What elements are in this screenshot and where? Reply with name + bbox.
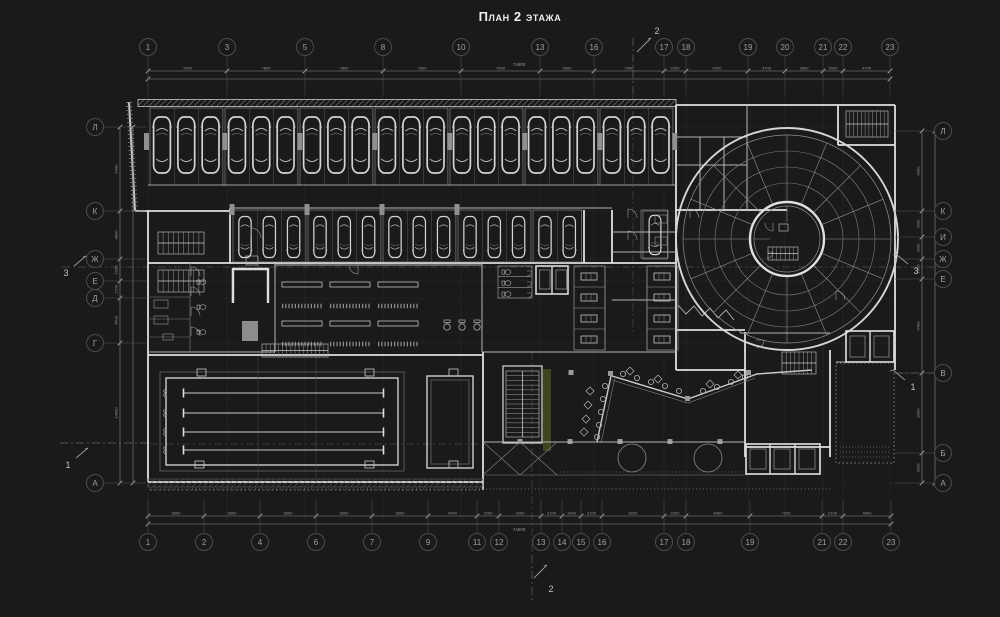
- section-marker-2: 2: [534, 565, 554, 594]
- svg-text:20: 20: [781, 43, 790, 52]
- svg-text:74600: 74600: [513, 62, 526, 67]
- svg-text:2: 2: [202, 538, 207, 547]
- svg-text:9: 9: [426, 538, 431, 547]
- grid-bubble: 7: [364, 534, 381, 551]
- svg-text:1: 1: [910, 382, 915, 392]
- planter-strip: [543, 369, 551, 451]
- section-markers: 223311: [63, 26, 918, 594]
- grid-bubble: 16: [594, 534, 611, 551]
- svg-text:3700: 3700: [762, 66, 772, 71]
- svg-text:17: 17: [660, 538, 669, 547]
- grid-bubble: А: [87, 475, 104, 492]
- grid-bubble: 12: [491, 534, 508, 551]
- svg-text:3: 3: [63, 268, 68, 278]
- svg-text:14: 14: [558, 538, 567, 547]
- grid-bubble: 11: [469, 534, 486, 551]
- grid-bubble: Б: [935, 445, 952, 462]
- svg-text:1: 1: [65, 460, 70, 470]
- svg-text:1: 1: [146, 43, 151, 52]
- grid-bubble: А: [935, 475, 952, 492]
- grid-bubble: 22: [835, 39, 852, 56]
- svg-text:2200: 2200: [484, 511, 494, 516]
- svg-text:19: 19: [746, 538, 755, 547]
- svg-text:5: 5: [303, 43, 308, 52]
- parking-top-wall: [138, 100, 676, 107]
- grid-bubble: Л: [935, 123, 952, 140]
- svg-text:18: 18: [682, 43, 691, 52]
- grid-bubble: Ж: [935, 251, 952, 268]
- svg-text:4200: 4200: [516, 511, 526, 516]
- svg-text:Л: Л: [92, 123, 97, 132]
- svg-text:5600: 5600: [396, 511, 406, 516]
- svg-text:5600: 5600: [172, 511, 182, 516]
- grid-bubble: К: [87, 203, 104, 220]
- grid-bubble: 4: [252, 534, 269, 551]
- small-pool: [427, 376, 473, 468]
- spiral-ramp: [676, 128, 898, 350]
- section-marker-1: 1: [65, 448, 88, 470]
- grid-bubble: Е: [935, 271, 952, 288]
- grid-bubble: 9: [420, 534, 437, 551]
- svg-text:1700: 1700: [114, 284, 119, 294]
- main-pool: [166, 378, 398, 465]
- grid-bubble: Г: [87, 335, 104, 352]
- svg-text:14000: 14000: [114, 407, 119, 419]
- grid-bubble: 21: [815, 39, 832, 56]
- grid-bubble: 5: [297, 39, 314, 56]
- shaft-fill: [242, 321, 258, 341]
- grid-bubble: 2: [196, 534, 213, 551]
- grid-bubble: Л: [87, 119, 104, 136]
- grid-bubbles: 1358101316171819202122231246791112131415…: [87, 39, 952, 551]
- svg-text:2200: 2200: [671, 511, 681, 516]
- svg-text:7000: 7000: [625, 66, 635, 71]
- svg-text:2200: 2200: [671, 66, 681, 71]
- svg-text:Д: Д: [92, 294, 98, 303]
- svg-text:6200: 6200: [713, 66, 723, 71]
- svg-text:2: 2: [654, 26, 659, 36]
- svg-text:Г: Г: [93, 339, 98, 348]
- column-circle: [694, 444, 722, 472]
- parking-row-top: [144, 108, 677, 185]
- svg-text:23: 23: [886, 43, 895, 52]
- svg-text:А: А: [940, 479, 946, 488]
- grid-bubble: 20: [777, 39, 794, 56]
- cabin-stacks: [574, 266, 678, 350]
- grid-bubble: Е: [87, 273, 104, 290]
- sawtooth-wall: [678, 305, 734, 320]
- svg-text:И: И: [940, 233, 946, 242]
- svg-text:2200: 2200: [114, 265, 119, 275]
- ramp-spokes: [683, 135, 891, 343]
- svg-text:6: 6: [314, 538, 319, 547]
- svg-text:К: К: [93, 207, 98, 216]
- bar-counter: [612, 370, 812, 399]
- grid-bubble: 17: [656, 534, 673, 551]
- svg-text:2200: 2200: [916, 243, 921, 253]
- svg-text:1900: 1900: [567, 511, 577, 516]
- svg-text:16: 16: [598, 538, 607, 547]
- svg-text:16: 16: [590, 43, 599, 52]
- svg-text:22: 22: [839, 538, 848, 547]
- gym-locker-room: [282, 282, 480, 344]
- grid-bubble: 18: [678, 39, 695, 56]
- svg-text:7800: 7800: [340, 66, 350, 71]
- svg-text:4500: 4500: [114, 315, 119, 325]
- grid-bubble: К: [935, 203, 952, 220]
- svg-text:4700: 4700: [862, 66, 872, 71]
- grid-bubble: 6: [308, 534, 325, 551]
- svg-text:2100: 2100: [547, 511, 557, 516]
- svg-text:7900: 7900: [496, 66, 506, 71]
- floor-plan-screenshot: План 2 этажа: [0, 0, 1000, 617]
- svg-text:4800: 4800: [863, 511, 873, 516]
- svg-text:10: 10: [457, 43, 466, 52]
- svg-text:1: 1: [146, 538, 151, 547]
- grid-bubble: И: [935, 229, 952, 246]
- column-circle: [618, 444, 646, 472]
- svg-text:12: 12: [495, 538, 504, 547]
- svg-text:К: К: [941, 207, 946, 216]
- svg-text:15: 15: [577, 538, 586, 547]
- grid-bubble: 13: [532, 39, 549, 56]
- grid-bubble: 1: [140, 534, 157, 551]
- grid-bubble: 13: [533, 534, 550, 551]
- grid-bubble: 15: [573, 534, 590, 551]
- svg-text:5600: 5600: [228, 511, 238, 516]
- svg-text:3: 3: [913, 266, 918, 276]
- svg-text:Е: Е: [92, 277, 97, 286]
- svg-text:18: 18: [682, 538, 691, 547]
- svg-text:2: 2: [548, 584, 553, 594]
- svg-text:21: 21: [818, 538, 827, 547]
- svg-text:В: В: [940, 369, 945, 378]
- grid-bubble: 3: [219, 39, 236, 56]
- svg-text:7800: 7800: [418, 66, 428, 71]
- service-rooms: [154, 111, 894, 474]
- grid-bubble: 23: [883, 534, 900, 551]
- svg-text:13: 13: [537, 538, 546, 547]
- svg-text:Ж: Ж: [91, 255, 99, 264]
- svg-text:А: А: [92, 479, 98, 488]
- svg-text:3800: 3800: [800, 66, 810, 71]
- svg-text:11: 11: [473, 538, 482, 547]
- svg-text:6400: 6400: [714, 511, 724, 516]
- svg-text:19: 19: [744, 43, 753, 52]
- grid-bubble: 23: [882, 39, 899, 56]
- svg-text:7200: 7200: [782, 511, 792, 516]
- floor-plan-canvas: 7900780078007800790054007000220062003700…: [0, 0, 1000, 617]
- svg-text:8000: 8000: [916, 166, 921, 176]
- svg-text:Ж: Ж: [939, 255, 947, 264]
- svg-text:23: 23: [887, 538, 896, 547]
- grid-bubble: 19: [742, 534, 759, 551]
- grid-bubble: 21: [814, 534, 831, 551]
- svg-text:5400: 5400: [563, 66, 573, 71]
- svg-text:2100: 2100: [587, 511, 597, 516]
- grid-bubble: 1: [140, 39, 157, 56]
- dimension-lines: 7900780078007800790054007000220062003700…: [114, 62, 938, 532]
- parking-row-middle: [230, 204, 668, 262]
- walkway: [483, 442, 745, 475]
- grid-bubble: Ж: [87, 251, 104, 268]
- svg-text:2000: 2000: [829, 66, 839, 71]
- grid-bubble: В: [935, 365, 952, 382]
- svg-text:Б: Б: [940, 449, 945, 458]
- svg-text:7900: 7900: [183, 66, 193, 71]
- grid-bubble: 10: [453, 39, 470, 56]
- svg-text:7800: 7800: [262, 66, 272, 71]
- svg-text:Е: Е: [940, 275, 945, 284]
- svg-text:74600: 74600: [513, 527, 526, 532]
- pool-hall: [160, 356, 473, 480]
- svg-text:4900: 4900: [448, 511, 458, 516]
- svg-text:3000: 3000: [916, 463, 921, 473]
- svg-text:3: 3: [225, 43, 230, 52]
- svg-text:13: 13: [536, 43, 545, 52]
- svg-text:4800: 4800: [114, 230, 119, 240]
- terrace-dotted: [836, 363, 894, 463]
- grid-bubble: 14: [554, 534, 571, 551]
- drawing-title: План 2 этажа: [20, 9, 1000, 24]
- svg-text:9400: 9400: [916, 321, 921, 331]
- svg-text:4: 4: [258, 538, 263, 547]
- pool-lanes: [164, 389, 384, 455]
- svg-text:17: 17: [660, 43, 669, 52]
- columns: [518, 370, 752, 444]
- svg-text:22: 22: [839, 43, 848, 52]
- svg-text:8: 8: [381, 43, 386, 52]
- svg-text:2100: 2100: [828, 511, 838, 516]
- svg-text:6200: 6200: [629, 511, 639, 516]
- grid-bubble: 17: [656, 39, 673, 56]
- svg-text:8400: 8400: [114, 164, 119, 174]
- grid-bubble: 22: [835, 534, 852, 551]
- svg-text:Л: Л: [940, 127, 945, 136]
- svg-text:5600: 5600: [284, 511, 294, 516]
- grid-bubble: Д: [87, 290, 104, 307]
- svg-text:2600: 2600: [916, 219, 921, 229]
- svg-text:21: 21: [819, 43, 828, 52]
- grid-bubble: 16: [586, 39, 603, 56]
- svg-text:5600: 5600: [340, 511, 350, 516]
- grid-bubble: 8: [375, 39, 392, 56]
- svg-text:8000: 8000: [916, 408, 921, 418]
- grid-bubble: 19: [740, 39, 757, 56]
- grid-bubble: 18: [678, 534, 695, 551]
- svg-text:7: 7: [370, 538, 375, 547]
- lobby-bar: [150, 366, 830, 489]
